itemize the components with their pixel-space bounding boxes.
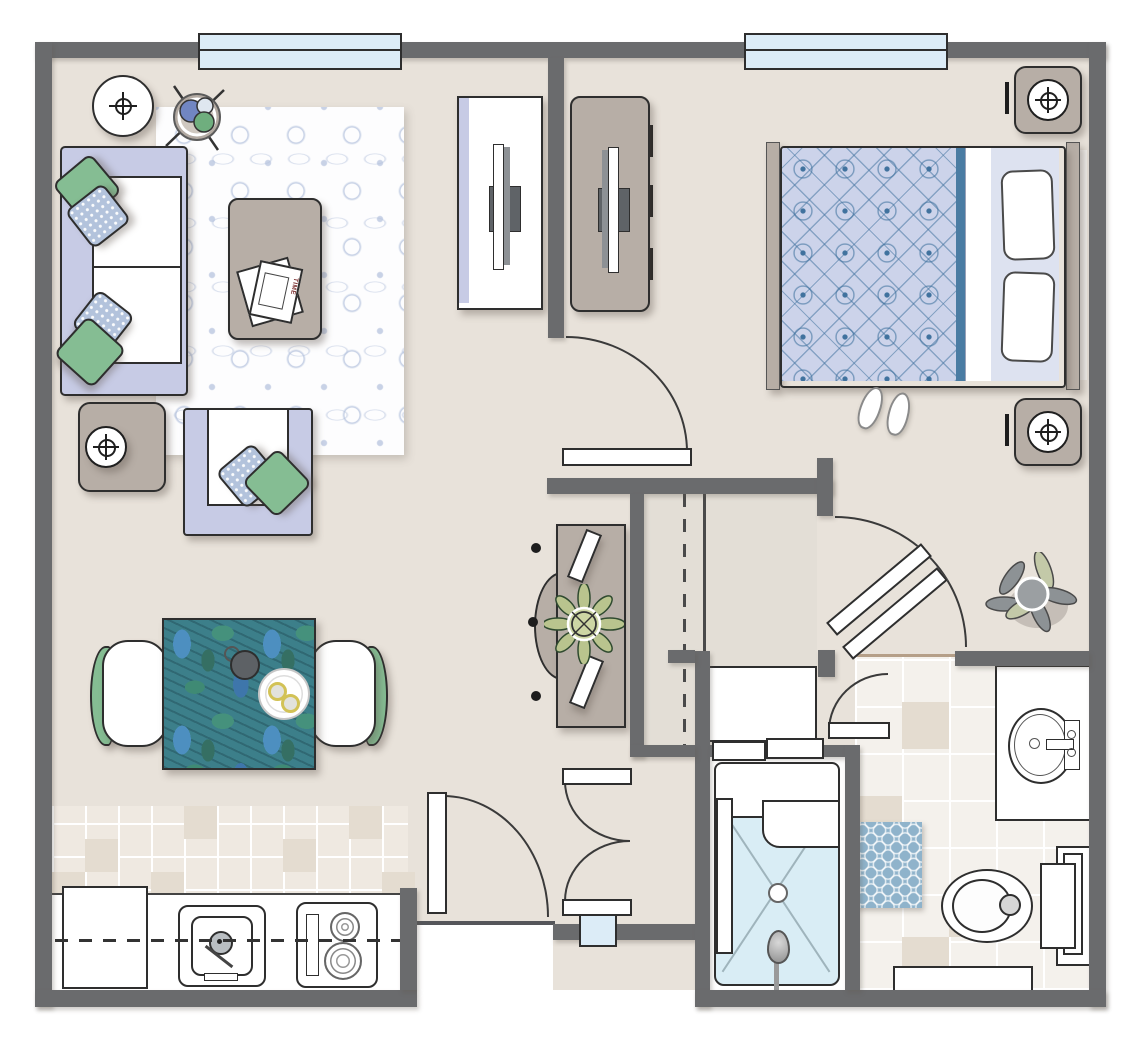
window-mullion <box>746 49 946 51</box>
entry-alcove-edge <box>415 921 555 925</box>
vanity-handle <box>1067 730 1076 739</box>
entry-alcove <box>417 925 553 991</box>
sink-tray <box>204 973 238 981</box>
cooktop <box>296 902 378 988</box>
kitchen-sink <box>178 905 266 987</box>
bath-mat <box>854 822 922 908</box>
shower-glass-panel <box>766 738 824 759</box>
shower-glass-panel <box>712 741 766 761</box>
tile-accent <box>85 839 118 872</box>
tv-console-white <box>457 96 543 310</box>
vanity-handle <box>1067 748 1076 757</box>
console-knob <box>531 543 541 553</box>
toilet-tank <box>1040 863 1076 949</box>
wall-bath-top <box>955 651 1089 666</box>
bed-pillow <box>1000 169 1055 261</box>
wall-shower-right <box>845 745 860 990</box>
wall-bottom-bath <box>695 990 1106 1007</box>
dresser-with-tv <box>570 96 650 312</box>
bedroom-door <box>562 448 692 466</box>
console-knob <box>528 617 538 627</box>
dining-chair-left <box>102 640 168 747</box>
wall-entry-bottom <box>553 924 695 940</box>
bed-sheet <box>965 148 992 381</box>
shower-glass-door <box>716 798 733 954</box>
bathroom-cabinet <box>707 666 817 742</box>
tile-accent <box>902 702 949 749</box>
wall-vestibule-stub <box>817 458 833 516</box>
console-plant <box>544 584 624 664</box>
tile-accent <box>349 806 382 839</box>
wall-livingroom-bedroom <box>548 58 564 338</box>
coffee-cup <box>230 650 260 680</box>
wall-foot-piece <box>668 650 695 663</box>
living-room-plant <box>158 80 236 156</box>
wall-closet-bottom <box>630 745 695 757</box>
closet-rod <box>683 494 686 745</box>
refrigerator <box>62 886 148 989</box>
magazine-photo <box>258 272 289 309</box>
burner-large <box>324 942 362 980</box>
tile-accent <box>184 806 217 839</box>
nightstand-lamp <box>1027 79 1069 121</box>
tv-screen <box>608 147 619 273</box>
headboard-trim <box>1079 150 1087 380</box>
shower-seat-extension <box>762 800 840 848</box>
egg <box>281 694 300 713</box>
bed-pillow <box>1000 271 1055 363</box>
table-lamp <box>85 426 127 468</box>
wall-switch <box>1005 82 1009 114</box>
wall-kitchen-stub <box>400 888 417 990</box>
wall-hall-horizontal <box>547 478 833 494</box>
magazine-title: TIME <box>289 277 299 296</box>
wall-closet-left <box>630 494 644 757</box>
window-mullion <box>200 49 400 51</box>
wall-bottom-kitchen <box>35 990 417 1007</box>
shower-drain <box>768 883 788 903</box>
bed-duvet <box>782 148 956 381</box>
wall-switch <box>1005 414 1009 446</box>
tv-screen-side <box>504 147 510 265</box>
bed-headboard <box>1066 142 1080 390</box>
double-bed <box>780 146 1066 388</box>
vanity-drain <box>1029 738 1040 749</box>
wall-niche-piece <box>818 650 835 677</box>
window-top-right <box>744 33 948 70</box>
burner-small <box>330 912 360 942</box>
entry-door-lower <box>562 899 632 916</box>
wall-right <box>1089 42 1106 1007</box>
floor-plan: TIME <box>0 0 1143 1050</box>
entry-door-upper <box>562 768 632 785</box>
round-side-table <box>92 75 154 137</box>
kitchen-door <box>427 792 447 914</box>
dining-chair-right <box>310 640 376 747</box>
console-knob <box>531 691 541 701</box>
wall-left <box>35 42 52 1007</box>
tv-screen <box>493 144 504 270</box>
nightstand-lamp <box>1027 411 1069 453</box>
bathroom-door <box>828 722 890 739</box>
counter-section-line <box>55 939 405 942</box>
corner-plant <box>982 552 1086 648</box>
shower-head <box>767 930 790 964</box>
wall-hall-right <box>695 651 710 1007</box>
tile-accent <box>283 839 316 872</box>
toilet-flush-button <box>999 894 1021 916</box>
bed-footboard <box>766 142 780 390</box>
console-trim <box>459 98 469 303</box>
window-top-left <box>198 33 402 70</box>
bathroom-threshold <box>855 654 957 657</box>
cooktop-panel <box>306 914 319 976</box>
duvet-fold-edge <box>956 148 965 381</box>
